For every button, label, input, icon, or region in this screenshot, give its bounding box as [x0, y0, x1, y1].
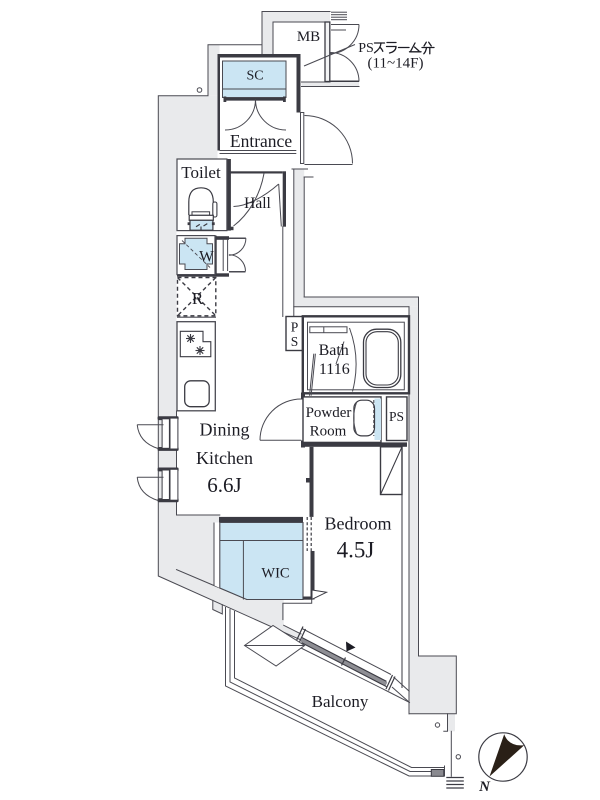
svg-text:P: P — [291, 320, 299, 335]
svg-text:N: N — [478, 779, 491, 795]
svg-text:Entrance: Entrance — [230, 131, 292, 151]
svg-text:(11~14F): (11~14F) — [368, 56, 424, 72]
svg-text:Bedroom: Bedroom — [325, 514, 392, 534]
svg-text:Toilet: Toilet — [181, 163, 221, 182]
svg-text:Room: Room — [310, 424, 347, 440]
svg-text:S: S — [291, 334, 299, 349]
svg-text:SC: SC — [246, 69, 263, 84]
svg-text:WIC: WIC — [261, 566, 289, 582]
svg-text:6.6J: 6.6J — [207, 473, 241, 497]
svg-text:Hall: Hall — [244, 195, 271, 212]
svg-text:MB: MB — [297, 29, 320, 45]
svg-text:R: R — [192, 289, 204, 308]
svg-text:4.5J: 4.5J — [337, 538, 375, 563]
svg-text:Kitchen: Kitchen — [196, 448, 253, 468]
svg-text:W: W — [199, 249, 214, 266]
svg-text:Dining: Dining — [199, 420, 249, 440]
svg-text:1116: 1116 — [319, 361, 350, 378]
svg-text:PS: PS — [389, 409, 404, 424]
svg-text:Powder: Powder — [306, 405, 352, 421]
svg-text:PS: PS — [358, 41, 374, 56]
svg-text:Balcony: Balcony — [312, 692, 369, 711]
svg-text:Bath: Bath — [319, 342, 349, 359]
